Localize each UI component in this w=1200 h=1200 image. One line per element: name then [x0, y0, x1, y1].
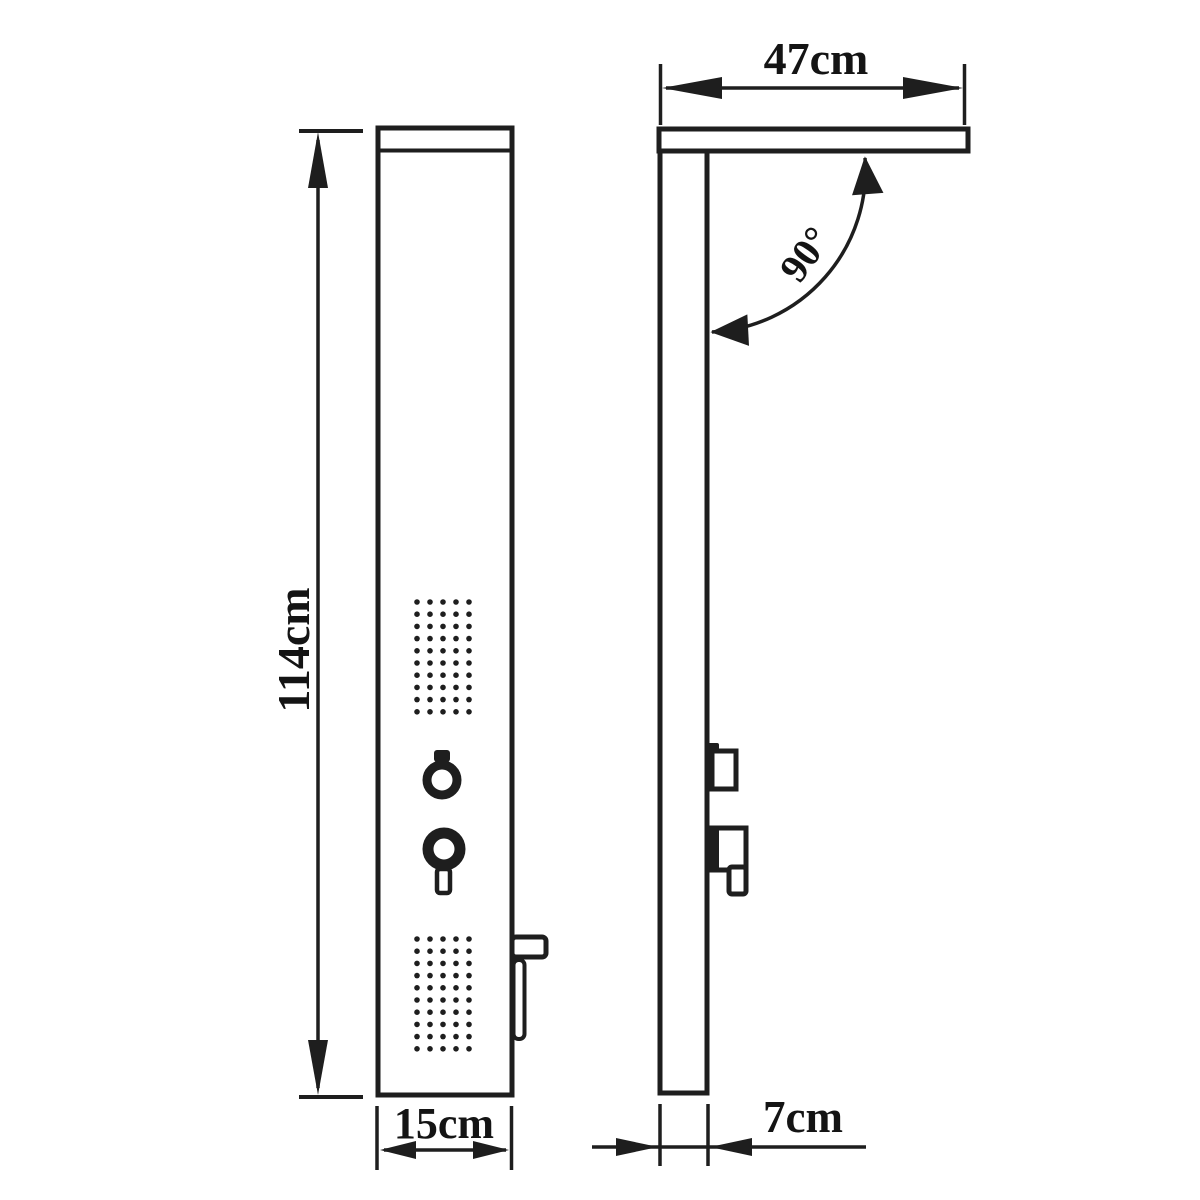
jet-dot [453, 948, 459, 954]
jet-dot [414, 624, 420, 630]
depth-arrow-right [710, 1138, 752, 1156]
jet-dot [427, 1009, 433, 1015]
side-view-top-arm [659, 129, 968, 151]
jet-dot [453, 672, 459, 678]
jet-dot [414, 1034, 420, 1040]
lower-knob-ring [428, 833, 460, 865]
jet-dot [440, 1009, 446, 1015]
jet-dot [440, 672, 446, 678]
jet-dot [466, 624, 472, 630]
shower-panel-dimension-drawing: 114cm 15cm 47cm 7cm 90° [0, 0, 1200, 1200]
jet-dot [453, 1022, 459, 1028]
jet-dot [440, 948, 446, 954]
jet-dot [427, 709, 433, 715]
jet-dot [466, 985, 472, 991]
jet-dot [453, 660, 459, 666]
jet-dot [466, 636, 472, 642]
jet-dot [427, 1046, 433, 1052]
jet-dot [414, 636, 420, 642]
depth-dimension: 7cm [592, 1092, 866, 1166]
lower-knob-profile-lever [729, 867, 746, 894]
jet-dot [414, 936, 420, 942]
jet-dot [440, 697, 446, 703]
jet-dot [466, 1046, 472, 1052]
jet-dot [466, 672, 472, 678]
jet-dot [453, 1046, 459, 1052]
jet-dot [466, 648, 472, 654]
jet-dot [427, 948, 433, 954]
jet-dot [427, 697, 433, 703]
jet-dot [427, 685, 433, 691]
jet-dot [453, 685, 459, 691]
jet-dot [427, 985, 433, 991]
front-width-dimension-label: 15cm [394, 1099, 494, 1148]
jet-dot [453, 599, 459, 605]
jet-dot [466, 1034, 472, 1040]
jet-dot [427, 672, 433, 678]
jet-dot [427, 660, 433, 666]
jet-dot [466, 973, 472, 979]
depth-arrow-left [616, 1138, 658, 1156]
jet-dot [466, 611, 472, 617]
jet-dot [466, 1009, 472, 1015]
arm-arrow-left [662, 77, 722, 99]
lower-knob-lever [437, 869, 450, 893]
jet-dot [414, 948, 420, 954]
jet-dot [440, 1046, 446, 1052]
jet-dot [440, 936, 446, 942]
jet-dot [427, 624, 433, 630]
arm-width-dimension: 47cm [661, 33, 965, 125]
jet-dot [453, 973, 459, 979]
jet-dot [414, 648, 420, 654]
jet-dot [427, 961, 433, 967]
height-arrow-down [308, 1040, 328, 1095]
jet-dot [453, 1009, 459, 1015]
jet-dot [466, 948, 472, 954]
arm-width-dimension-label: 47cm [764, 33, 869, 84]
jet-dot [440, 985, 446, 991]
hand-shower-handle [514, 960, 525, 1039]
jet-dot [414, 973, 420, 979]
jet-dot [427, 973, 433, 979]
side-view-panel-bar [660, 151, 707, 1093]
jet-dot [453, 936, 459, 942]
depth-dimension-label: 7cm [763, 1092, 843, 1142]
angle-annotation: 90° [712, 158, 865, 332]
jet-dot [440, 1034, 446, 1040]
jet-dot [440, 624, 446, 630]
jet-dot [427, 599, 433, 605]
jet-dot [427, 648, 433, 654]
technical-drawing-canvas: 114cm 15cm 47cm 7cm 90° [0, 0, 1200, 1200]
angle-label: 90° [770, 218, 839, 290]
jet-dot [440, 709, 446, 715]
jet-dot [466, 685, 472, 691]
jet-dot [414, 997, 420, 1003]
jet-dot [453, 636, 459, 642]
jet-dot [440, 973, 446, 979]
jet-dot [466, 660, 472, 666]
upper-knob-ring [427, 765, 457, 795]
jet-dot [427, 936, 433, 942]
jet-dot [466, 709, 472, 715]
jet-dot [440, 685, 446, 691]
height-dimension-label: 114cm [268, 587, 319, 712]
jet-dot [440, 961, 446, 967]
upper-knob-tab [434, 750, 450, 762]
jet-dot [414, 985, 420, 991]
jet-dot [440, 636, 446, 642]
jet-dot [414, 709, 420, 715]
jet-dot [414, 1009, 420, 1015]
jet-dot [453, 997, 459, 1003]
jet-dot [414, 1046, 420, 1052]
jet-dot [453, 985, 459, 991]
lower-knob-profile [707, 828, 746, 894]
jet-dot [427, 1022, 433, 1028]
jet-dot [427, 997, 433, 1003]
jet-dot [440, 611, 446, 617]
hand-shower-bracket [512, 937, 546, 957]
jet-dot [427, 1034, 433, 1040]
jet-dot [440, 599, 446, 605]
jet-dot [414, 611, 420, 617]
upper-knob-profile [707, 743, 736, 789]
jet-dot [414, 685, 420, 691]
front-view [378, 128, 546, 1095]
jet-dot [453, 624, 459, 630]
arm-arrow-right [903, 77, 963, 99]
jet-dot [414, 672, 420, 678]
jet-dot [414, 1022, 420, 1028]
jet-dot [466, 997, 472, 1003]
hand-shower [512, 937, 546, 1039]
front-width-dimension: 15cm [377, 1099, 512, 1170]
jet-dot [466, 961, 472, 967]
jet-dot [453, 611, 459, 617]
jet-dot [414, 660, 420, 666]
height-dimension: 114cm [268, 131, 363, 1097]
jet-dot [414, 697, 420, 703]
jet-dot [466, 599, 472, 605]
jet-dot [453, 709, 459, 715]
jet-dot [427, 636, 433, 642]
jet-dot [440, 1022, 446, 1028]
jet-dot [427, 611, 433, 617]
jet-dot [453, 1034, 459, 1040]
lower-knob-profile-mount [707, 828, 719, 870]
jet-dot [440, 660, 446, 666]
jet-dot [466, 697, 472, 703]
jet-dot [414, 599, 420, 605]
height-arrow-up [308, 132, 328, 188]
jet-dot [466, 936, 472, 942]
jet-dot [453, 648, 459, 654]
upper-knob-profile-body [712, 751, 736, 789]
jet-dot [453, 961, 459, 967]
jet-dot [414, 961, 420, 967]
jet-dot [440, 997, 446, 1003]
jet-dot [453, 697, 459, 703]
jet-dot [466, 1022, 472, 1028]
jet-dot [440, 648, 446, 654]
